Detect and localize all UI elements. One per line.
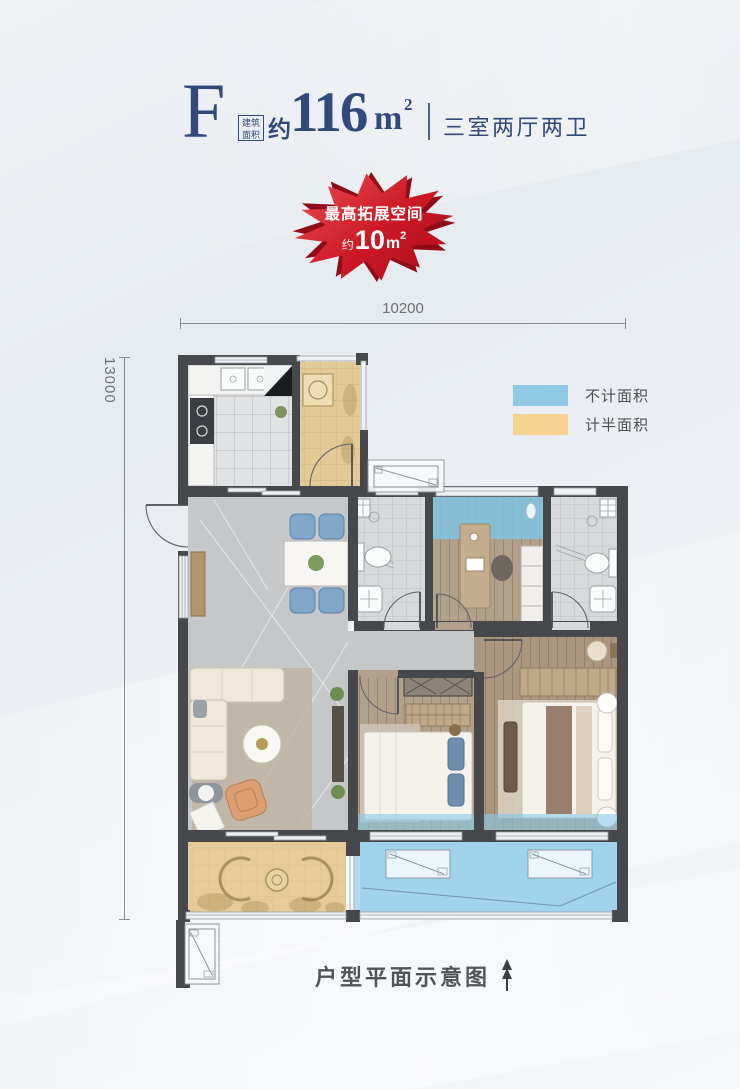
ac-platform-top (368, 460, 444, 492)
study-window (436, 487, 538, 496)
dining-chair (319, 588, 344, 613)
north-arrow-icon (500, 958, 514, 992)
sofa-pillow (193, 700, 207, 718)
kitchen-sink (221, 368, 245, 390)
terrace-glazing (186, 912, 346, 919)
wardrobe (520, 668, 616, 696)
sideboard (191, 552, 205, 616)
lounge-chair (587, 641, 607, 661)
toilet (585, 553, 609, 573)
plant-icon (343, 384, 357, 416)
pillow (448, 774, 464, 806)
floorplan-drawing (0, 0, 740, 1089)
pillow (448, 738, 464, 770)
nightstand (597, 693, 617, 713)
tv-cabinet (332, 706, 344, 782)
kitchen-stove (190, 398, 214, 444)
balcony-glazing (360, 912, 612, 919)
bathroom-2-window (554, 488, 596, 495)
floorplan-page: F 建筑 面积 约 116 m 2 三室两厅两卫 最高拓展空间 约 (0, 0, 740, 1089)
terrace-table (266, 869, 288, 891)
plant-icon (308, 555, 324, 571)
caption: 户型平面示意图 (250, 960, 490, 992)
toilet-tank (609, 549, 617, 577)
ac-platform-bottom-left (185, 924, 219, 984)
dining-chair (319, 514, 344, 539)
desk-chair (491, 555, 513, 581)
dining-chair (290, 514, 315, 539)
pillow (598, 710, 612, 752)
plant-icon (449, 724, 461, 736)
bookshelf (521, 546, 543, 624)
toilet (365, 547, 391, 567)
terrace-slider (226, 832, 278, 836)
pillow (598, 758, 612, 800)
plant-icon (275, 406, 287, 418)
plant-icon (289, 897, 321, 913)
entry-opening (178, 505, 188, 551)
sofa (190, 668, 284, 702)
kitchen-slider (228, 488, 266, 492)
bed-runner (546, 706, 572, 814)
washing-machine (303, 374, 333, 406)
plant-icon (330, 687, 344, 701)
plant-icon (197, 893, 233, 911)
bed-bench (504, 722, 517, 792)
living-window (179, 556, 188, 618)
dining-chair (290, 588, 315, 613)
plant-icon (331, 785, 345, 799)
